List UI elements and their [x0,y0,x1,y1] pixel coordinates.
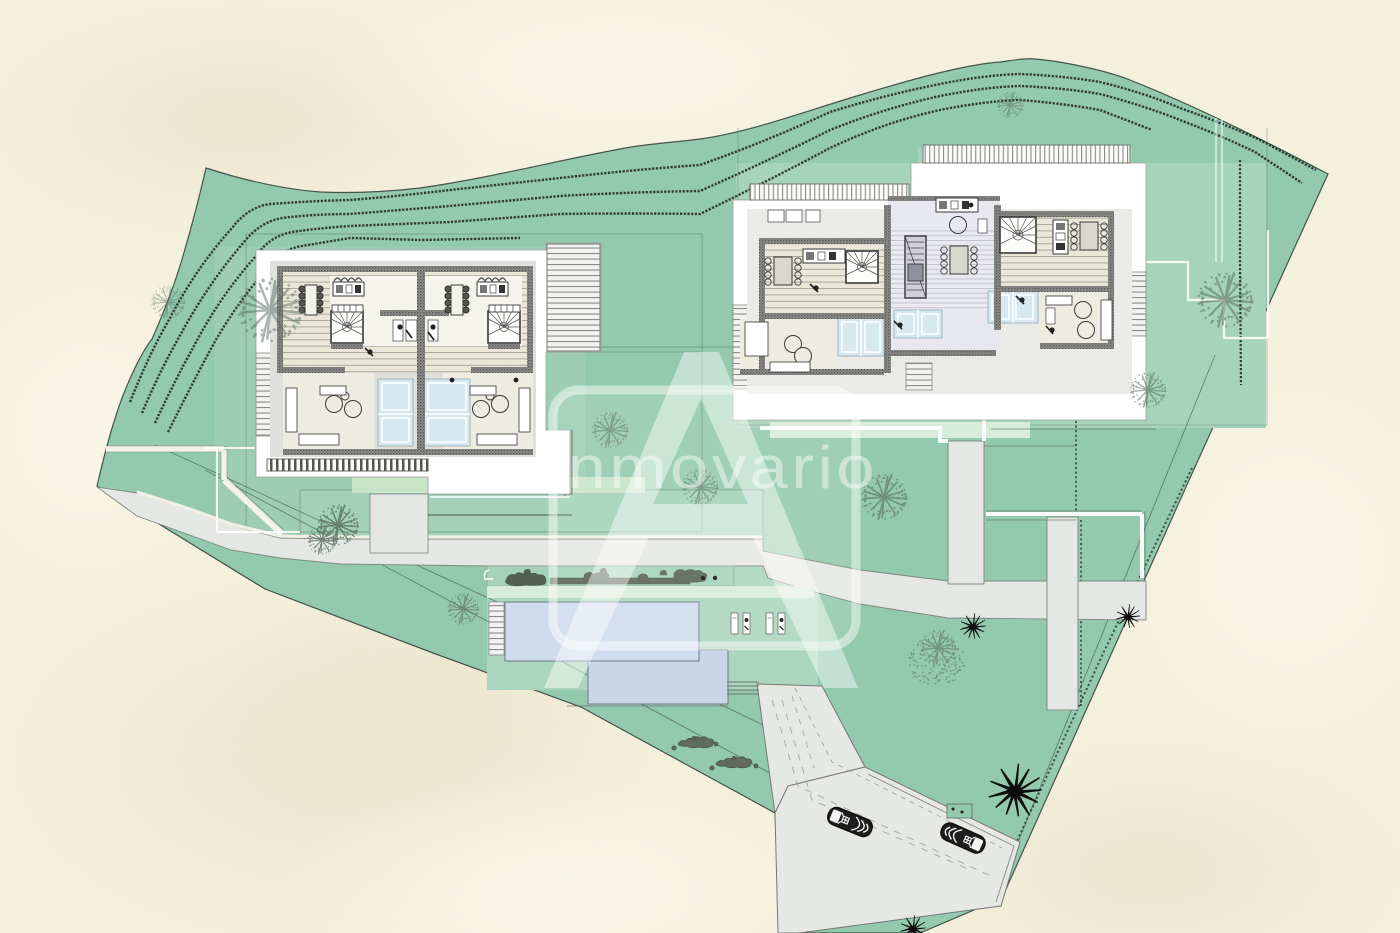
svg-text:Inmovario: Inmovario [545,434,878,501]
